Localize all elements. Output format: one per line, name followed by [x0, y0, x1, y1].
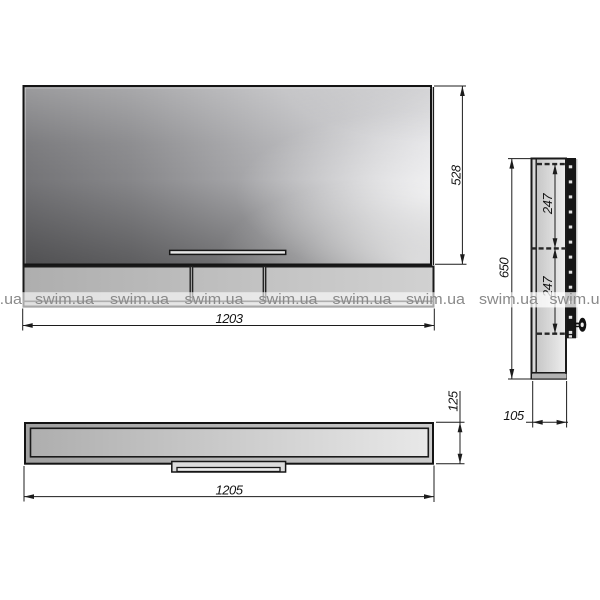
svg-text:swim.ua: swim.ua — [185, 292, 245, 308]
svg-text:swim.ua: swim.ua — [259, 292, 319, 308]
svg-text:528: 528 — [448, 164, 463, 186]
svg-text:swim.ua: swim.ua — [550, 292, 600, 308]
svg-text:swim.ua: swim.ua — [333, 292, 393, 308]
svg-text:650: 650 — [497, 257, 512, 279]
svg-text:swim.ua: swim.ua — [110, 292, 170, 308]
svg-text:1205: 1205 — [215, 483, 243, 498]
svg-text:105: 105 — [503, 408, 525, 423]
svg-text:1203: 1203 — [215, 311, 243, 326]
svg-text:swim.ua: swim.ua — [479, 292, 539, 308]
svg-text:swim.ua: swim.ua — [0, 292, 23, 308]
svg-text:swim.ua: swim.ua — [406, 292, 466, 308]
svg-text:125: 125 — [446, 390, 461, 412]
svg-text:swim.ua: swim.ua — [35, 292, 95, 308]
svg-text:247: 247 — [540, 193, 555, 216]
